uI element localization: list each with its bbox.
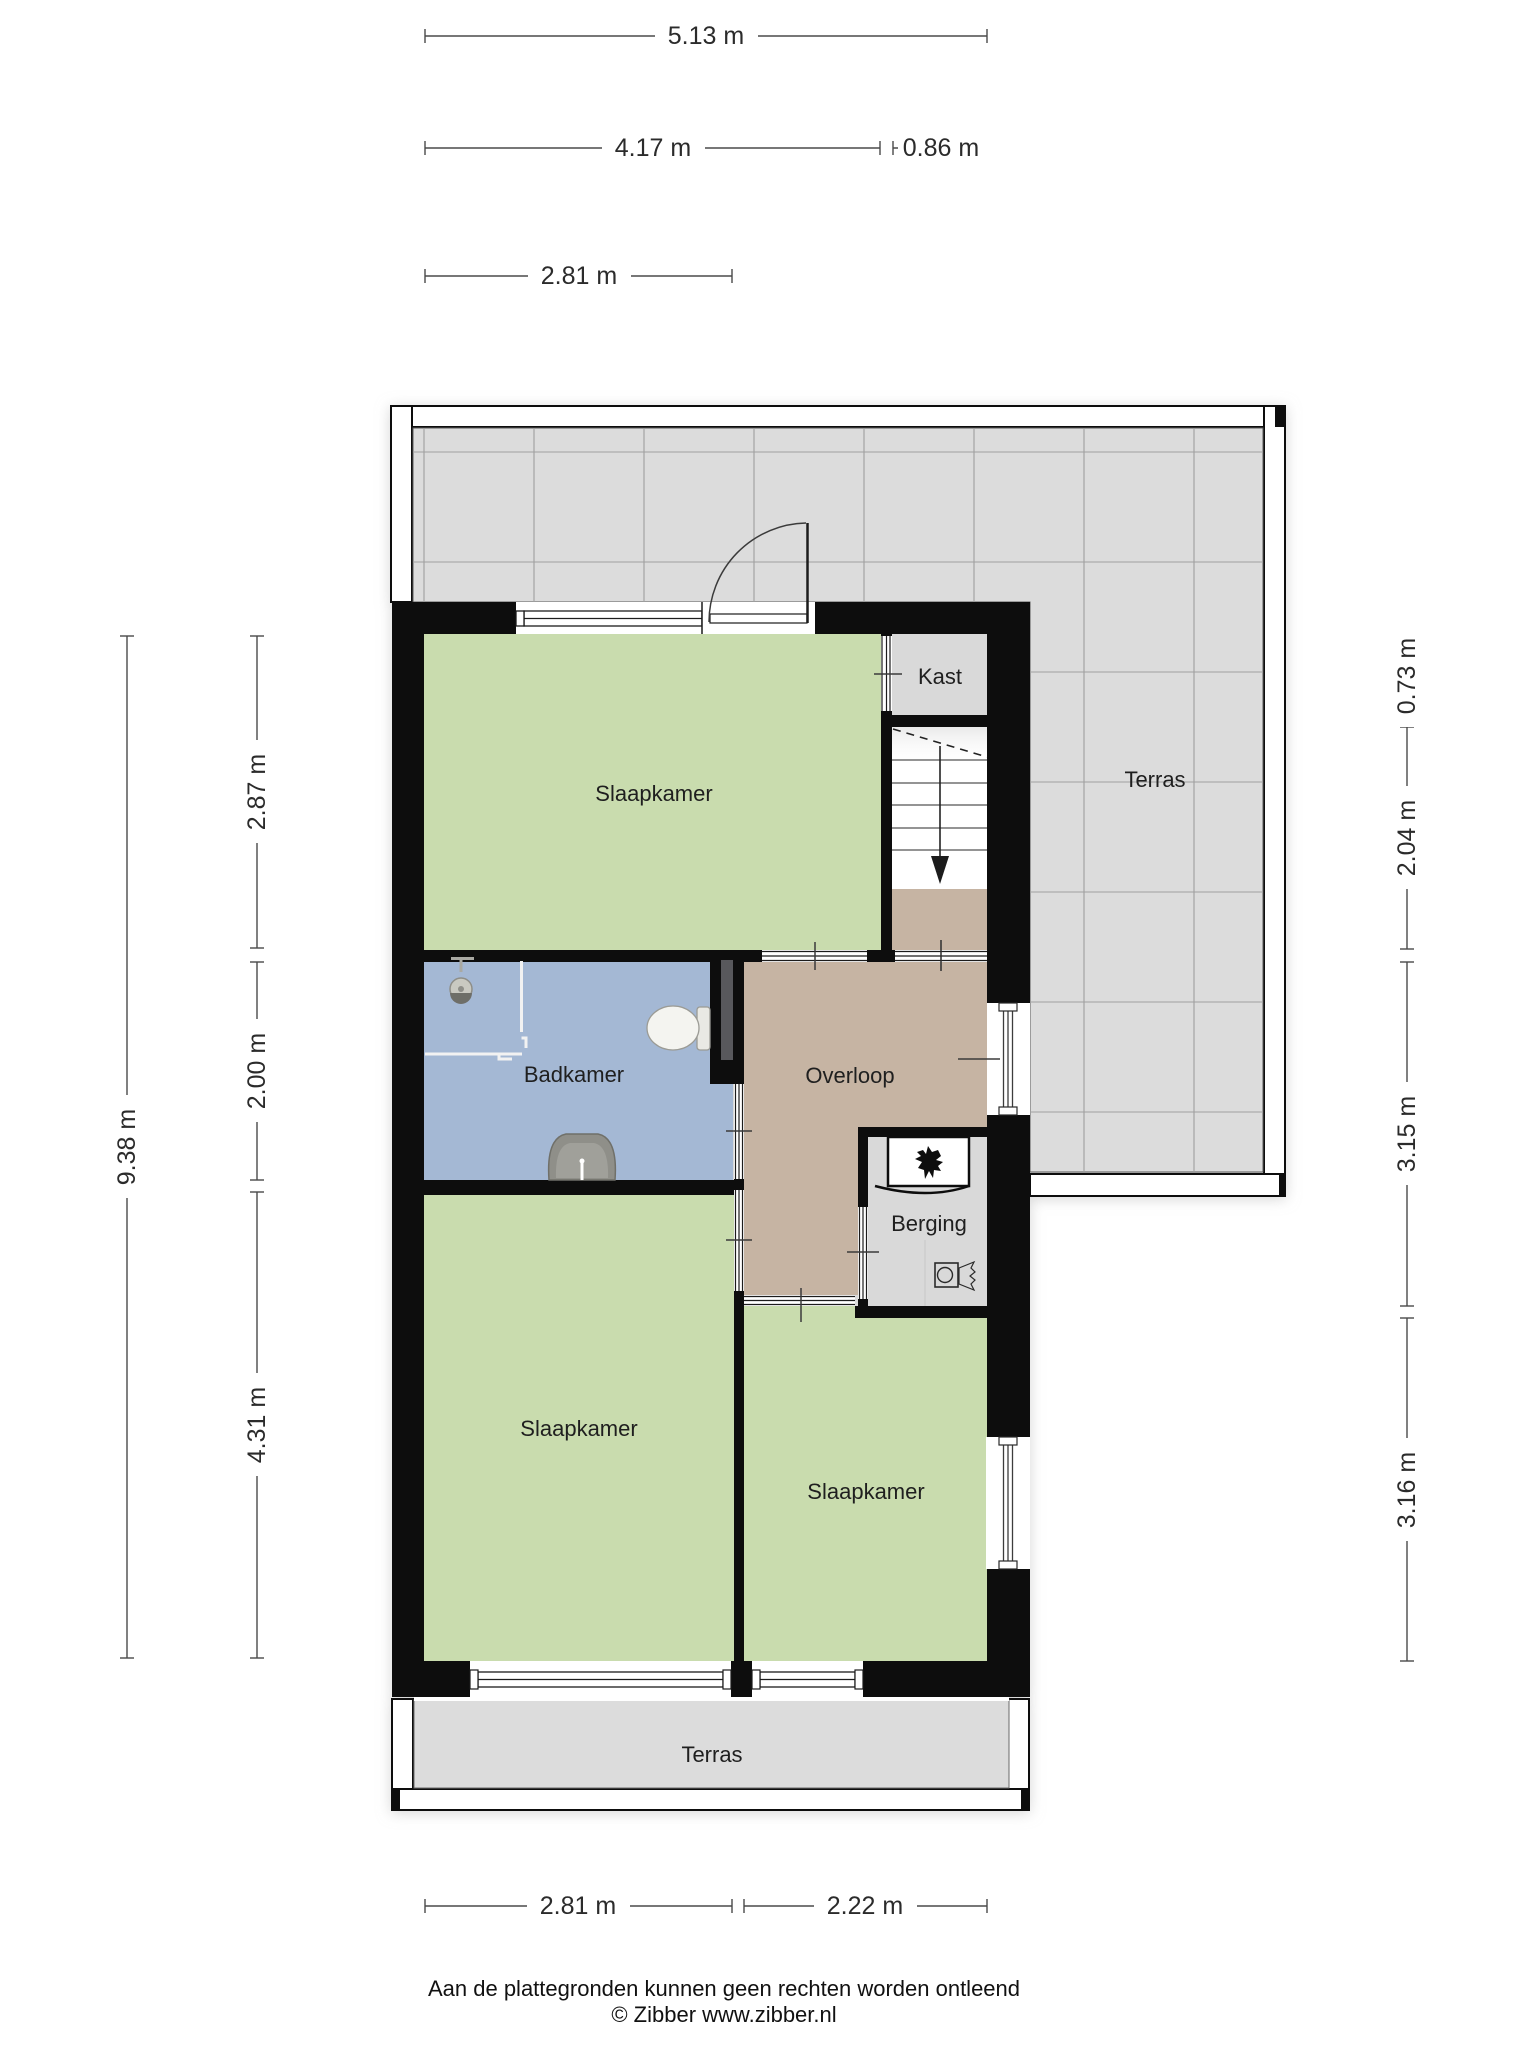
svg-text:© Zibber www.zibber.nl: © Zibber www.zibber.nl (611, 2002, 836, 2027)
svg-text:3.16 m: 3.16 m (1393, 1452, 1421, 1528)
svg-text:4.31 m: 4.31 m (243, 1387, 271, 1463)
svg-text:0.73 m: 0.73 m (1393, 638, 1421, 714)
svg-text:2.22 m: 2.22 m (827, 1892, 903, 1920)
svg-text:Badkamer: Badkamer (524, 1062, 624, 1087)
svg-text:2.81 m: 2.81 m (541, 262, 617, 290)
svg-text:2.87 m: 2.87 m (243, 754, 271, 830)
svg-text:Slaapkamer: Slaapkamer (595, 781, 712, 806)
svg-text:Terras: Terras (1124, 767, 1185, 792)
svg-text:Terras: Terras (681, 1742, 742, 1767)
svg-text:Kast: Kast (918, 664, 962, 689)
svg-text:4.17 m: 4.17 m (615, 134, 691, 162)
svg-text:Slaapkamer: Slaapkamer (520, 1416, 637, 1441)
svg-text:2.00 m: 2.00 m (243, 1033, 271, 1109)
svg-text:Aan de plattegronden kunnen ge: Aan de plattegronden kunnen geen rechten… (428, 1976, 1020, 2001)
svg-text:Berging: Berging (891, 1211, 967, 1236)
svg-text:2.04 m: 2.04 m (1393, 800, 1421, 876)
svg-text:0.86 m: 0.86 m (903, 134, 979, 162)
svg-text:5.13 m: 5.13 m (668, 22, 744, 50)
svg-text:9.38 m: 9.38 m (113, 1109, 141, 1185)
svg-text:Overloop: Overloop (805, 1063, 894, 1088)
svg-text:Slaapkamer: Slaapkamer (807, 1479, 924, 1504)
svg-text:2.81 m: 2.81 m (540, 1892, 616, 1920)
svg-text:3.15 m: 3.15 m (1393, 1096, 1421, 1172)
